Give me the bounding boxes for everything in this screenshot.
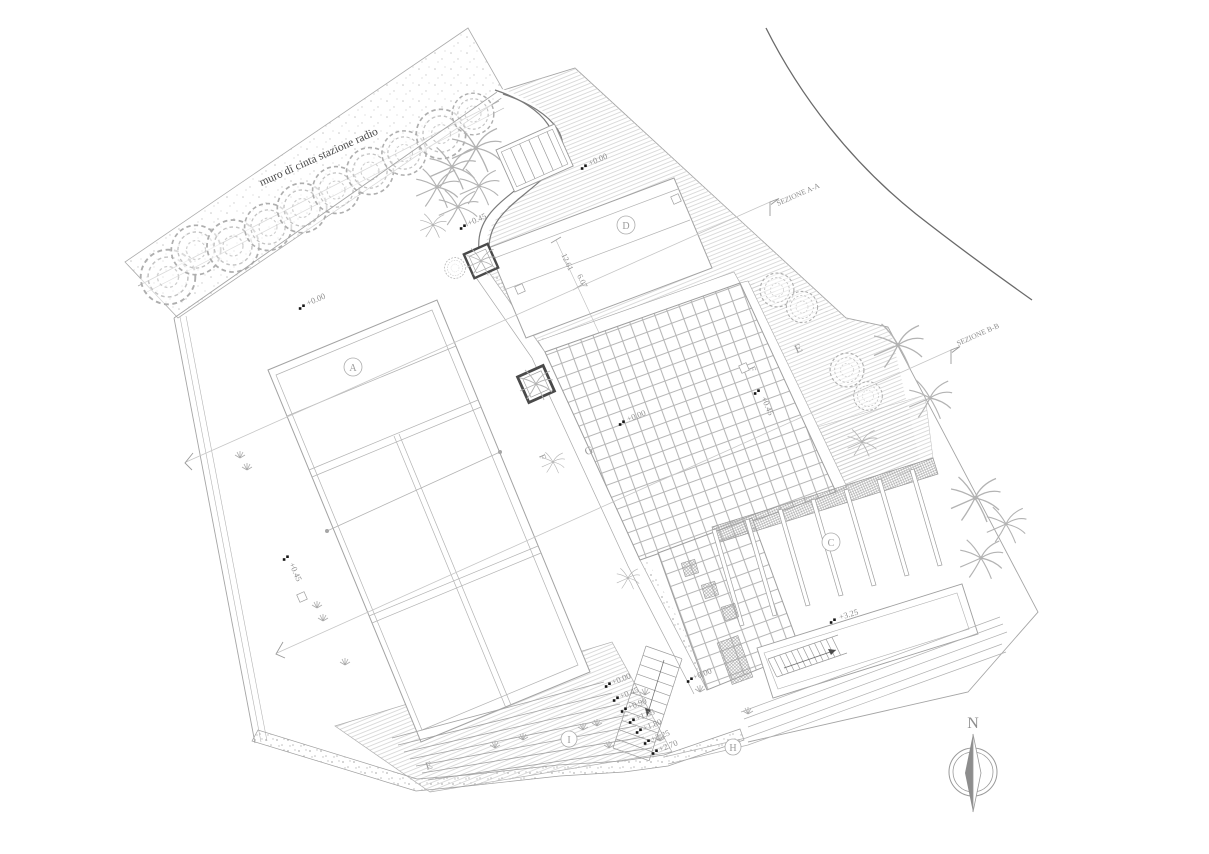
plant-tuft-icon xyxy=(640,688,650,695)
wall-tree-row xyxy=(141,93,494,304)
palm-icon xyxy=(416,169,459,208)
zone-i-label: I xyxy=(567,735,570,746)
compass-needle-icon xyxy=(965,734,973,812)
tree-icon xyxy=(452,93,494,135)
section-arrow-icon xyxy=(185,453,193,470)
zone-a-label: A xyxy=(349,363,357,374)
north-compass: N xyxy=(949,715,997,812)
site-plan-drawing: muro di cinta stazione radio xyxy=(0,0,1209,854)
zone-d-label: D xyxy=(622,221,629,232)
palm-icon xyxy=(960,540,1003,579)
plant-tuft-icon xyxy=(340,658,350,665)
road-edge xyxy=(766,28,1032,300)
palm-icon xyxy=(420,214,446,238)
tree-icon xyxy=(830,353,864,387)
plant-tuft-icon xyxy=(318,614,328,621)
north-label: N xyxy=(967,715,979,732)
plant-tuft-icon xyxy=(242,463,252,470)
zone-c-label: C xyxy=(828,538,835,549)
tree-icon xyxy=(786,291,817,322)
elevation-west-path: +0.45 xyxy=(287,561,304,583)
section-b-label: SEZIONE B-B xyxy=(955,321,1000,348)
tree-icon xyxy=(445,258,466,279)
section-flag-icon xyxy=(951,347,960,365)
terrace-c xyxy=(757,584,978,698)
palm-icon xyxy=(460,169,500,205)
elevation-west-lawn: +0.00 xyxy=(305,291,327,308)
section-a-label: SEZIONE A-A xyxy=(775,181,821,208)
site-plan-sheet: muro di cinta stazione radio xyxy=(0,0,1209,854)
zone-f-west-label: F xyxy=(537,452,548,461)
plant-tuft-icon xyxy=(235,451,245,458)
palm-icon xyxy=(951,477,1001,522)
zone-h-label: H xyxy=(729,743,736,754)
plant-tuft-icon xyxy=(312,601,322,608)
tree-icon xyxy=(854,382,883,411)
